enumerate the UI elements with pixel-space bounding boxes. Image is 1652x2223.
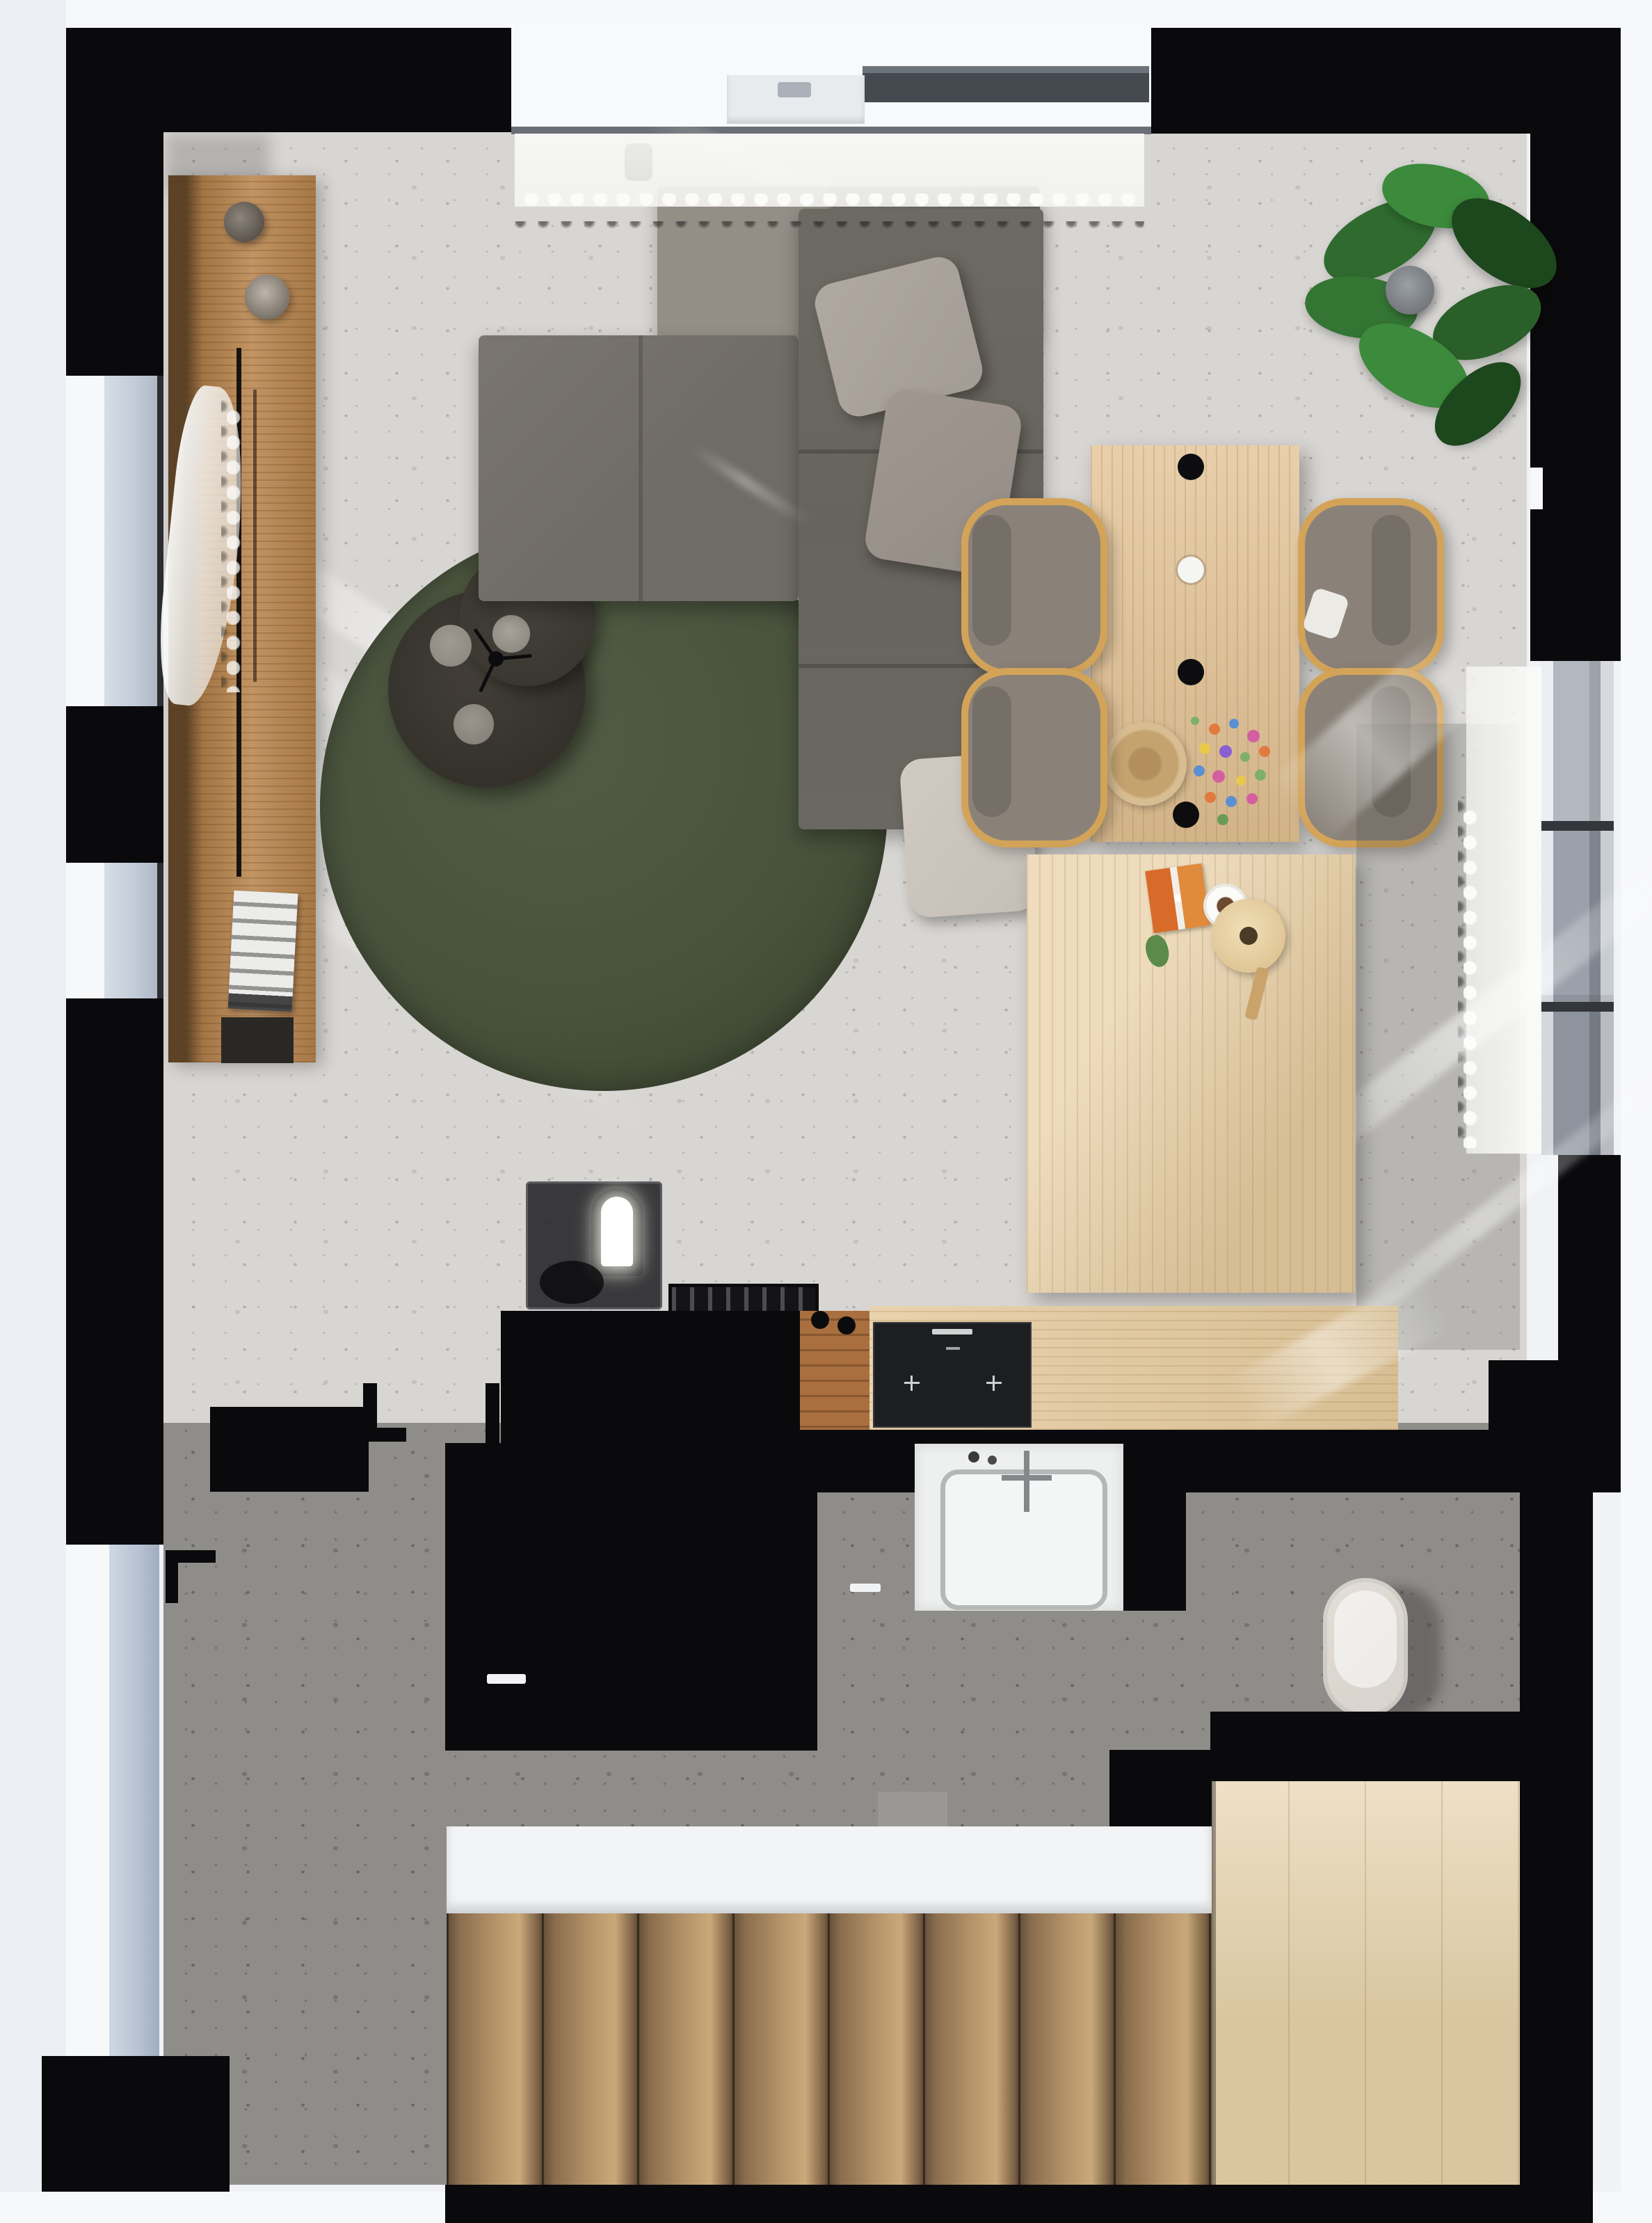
tray-plate-3 xyxy=(454,704,494,744)
sideboard-box xyxy=(221,1017,294,1063)
serving-bowl xyxy=(1103,722,1187,806)
magazine xyxy=(228,891,298,1012)
outer-margin-left xyxy=(0,0,66,2223)
right-wall-notch xyxy=(1530,468,1543,509)
left-window2-sill xyxy=(66,863,104,998)
lower-band-handle xyxy=(850,1584,881,1592)
left-window1-sill xyxy=(66,376,104,706)
top-window-handle xyxy=(778,82,811,97)
kitchen-wood-floor-strip xyxy=(800,1311,869,1443)
right-window-mullion1 xyxy=(1541,821,1614,831)
counter-knob-1 xyxy=(811,1311,829,1329)
door-jamb-3-post xyxy=(166,1550,178,1603)
arch-lamp-glow xyxy=(601,1197,633,1266)
kitchen-counter-black xyxy=(501,1311,817,1443)
stair-top-step xyxy=(447,1826,1212,1913)
left-door-glass xyxy=(109,1545,159,2056)
soap-1 xyxy=(968,1451,979,1463)
soap-2 xyxy=(988,1456,997,1465)
cooktop-plus-2b xyxy=(993,1376,995,1391)
flower-bouquet xyxy=(1191,717,1199,725)
right-window-mullion2 xyxy=(1541,1002,1614,1012)
pendant-light-3 xyxy=(1178,659,1204,685)
cooktop xyxy=(873,1322,1032,1428)
counter-knob-2 xyxy=(837,1316,856,1334)
wall-left-c xyxy=(66,998,163,1545)
plant-pot xyxy=(1386,266,1434,314)
pendant-light-2 xyxy=(1178,557,1204,583)
left-window1-glass xyxy=(104,376,159,706)
faucet-cross xyxy=(1002,1475,1052,1481)
chair-tr-back xyxy=(1372,515,1411,646)
stair-landing-edge xyxy=(1212,1781,1216,2185)
kitchen-island xyxy=(445,1443,817,1751)
cooktop-dash xyxy=(946,1347,960,1350)
island-handle xyxy=(487,1674,526,1684)
game-box xyxy=(1145,863,1210,934)
vase-1 xyxy=(224,202,264,242)
chair-bl-back xyxy=(972,686,1011,817)
toy-guitar-hole xyxy=(1240,927,1258,945)
left-window2-frame xyxy=(157,863,163,998)
floor-plan-render xyxy=(0,0,1652,2223)
bathroom-lower-wall-nib xyxy=(1109,1750,1210,1830)
sofa-seam-3 xyxy=(639,335,643,601)
curtain-left-hem xyxy=(221,400,253,692)
faucet-stem xyxy=(1024,1451,1029,1512)
vase-2 xyxy=(245,275,289,319)
curtain-right-hem xyxy=(1458,800,1494,1148)
stair-tread-gaps xyxy=(447,1913,1212,2185)
corner-block-bottom-left xyxy=(42,2056,230,2192)
wall-left-b xyxy=(66,706,163,863)
sideboard-groove-2 xyxy=(253,390,257,682)
wall-left-a xyxy=(66,28,163,376)
top-window-track xyxy=(863,66,1149,102)
cooktop-plus-1b xyxy=(911,1376,913,1391)
left-door-frame xyxy=(66,1545,109,2056)
toilet-seat xyxy=(1334,1591,1397,1688)
pendant-light-4 xyxy=(1173,802,1199,828)
pendant-light-1 xyxy=(1178,454,1204,480)
side-table-shadow-object xyxy=(540,1261,604,1304)
stair-landing xyxy=(1212,1781,1520,2185)
door-jamb-1-foot xyxy=(363,1428,406,1442)
wall-right-top xyxy=(1530,132,1621,661)
hall-wall-segment xyxy=(210,1407,369,1492)
curtain-top-hem xyxy=(515,189,1144,238)
door-jamb-2-foot xyxy=(456,1481,501,1495)
left-window2-glass xyxy=(104,863,159,998)
cooktop-label xyxy=(932,1329,972,1334)
wall-top-right xyxy=(1151,28,1621,134)
wall-right-c xyxy=(1520,1492,1593,2185)
door-jamb-2-post xyxy=(486,1383,499,1495)
bottom-wall-band xyxy=(445,2185,1593,2223)
tray-plate-2 xyxy=(492,615,530,653)
wall-right-b xyxy=(1558,1155,1621,1364)
bathroom-wall-column xyxy=(1123,1444,1186,1611)
gray-pillar-tab xyxy=(878,1792,947,1830)
tray-plate-1 xyxy=(430,625,472,667)
chair-tl-back xyxy=(972,515,1011,646)
